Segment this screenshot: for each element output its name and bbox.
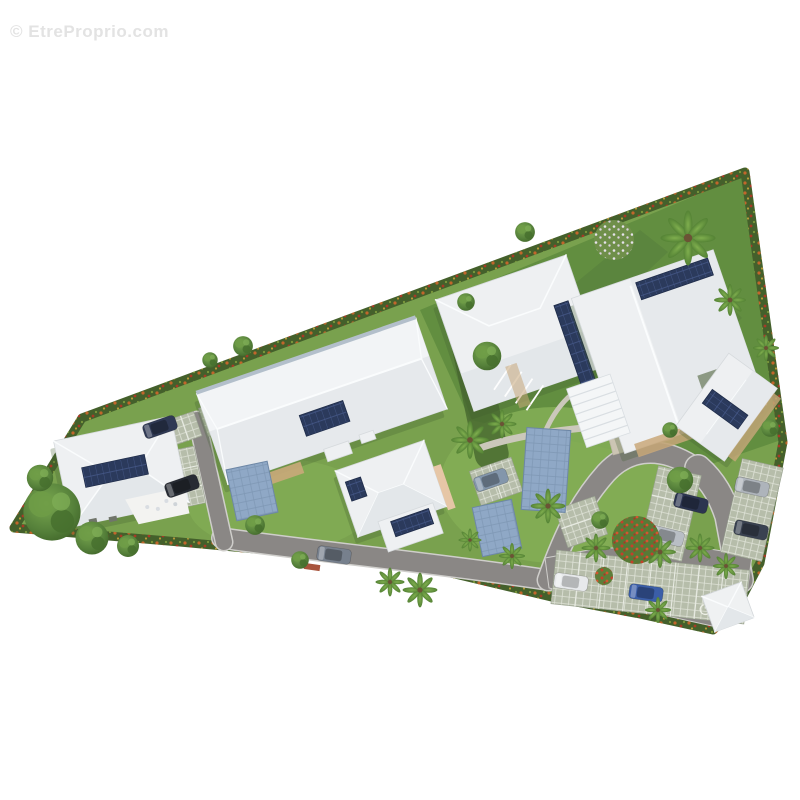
watermark: © EtreProprio.com — [10, 22, 169, 42]
site-plan-drawing — [0, 0, 800, 800]
tree-courtyard — [473, 342, 502, 371]
flowering-red-bush — [595, 567, 613, 585]
palm-bottom-overhang — [403, 573, 438, 608]
palm-top-right — [660, 210, 715, 265]
tree-top-left — [233, 336, 253, 356]
flowering-red-tree — [612, 516, 660, 564]
site-plan-image: © EtreProprio.com — [0, 0, 800, 800]
white-flower-bush — [594, 220, 634, 260]
tree-parking — [667, 467, 693, 493]
palm-central — [451, 421, 489, 459]
large-tree-left — [23, 483, 80, 540]
